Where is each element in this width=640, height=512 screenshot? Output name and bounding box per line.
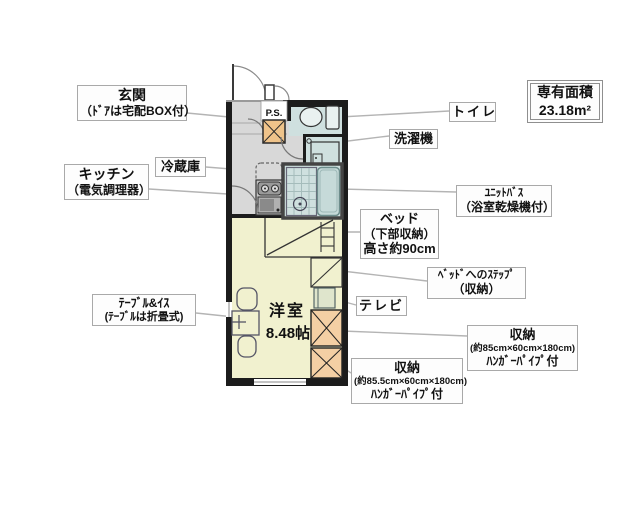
label-storage-bottom: 収納 (約85.5cm×60cm×180cm) ﾊﾝｶﾞｰﾊﾟｲﾌﾟ付	[351, 358, 463, 404]
label-tv: テレビ	[356, 296, 407, 316]
wall-washer-left	[303, 136, 306, 165]
closet-lower	[311, 348, 342, 378]
tv-box	[314, 288, 335, 308]
wall-right	[342, 100, 348, 386]
label-kitchen: キッチン （電気調理器）	[64, 164, 149, 200]
leader-storage-right	[342, 331, 467, 336]
door-arc-right	[275, 86, 289, 100]
ps-text: P.S.	[266, 108, 283, 119]
bathtub-icon	[318, 168, 340, 216]
floor-plan-page: P.S. 洋室 8.48帖 専有面積 23.18m² 玄関 （ﾄﾞｱは宅配BOX…	[0, 0, 640, 512]
outside-door-swings	[233, 64, 289, 100]
label-entrance: 玄関 （ﾄﾞｱは宅配BOX付）	[77, 85, 187, 121]
label-unit-bath: ﾕﾆｯﾄﾊﾞｽ （浴室乾燥機付）	[456, 185, 552, 217]
bed-step-box	[311, 258, 342, 287]
leader-unit-bath	[340, 189, 456, 192]
closet-upper	[311, 310, 342, 346]
floor-plan-drawing: P.S. 洋室 8.48帖	[0, 0, 640, 512]
wall-entrance-toilet	[287, 101, 291, 121]
label-refrigerator: 冷蔵庫	[155, 157, 206, 177]
wall-left	[226, 100, 232, 386]
room-name-text: 洋室	[269, 301, 305, 320]
label-storage-right: 収納 (約85cm×60cm×180cm) ﾊﾝｶﾞｰﾊﾟｲﾌﾟ付	[467, 325, 578, 371]
exclusive-area-value: 23.18m²	[531, 102, 599, 120]
bath-tile-floor	[287, 168, 317, 216]
label-bed: ベッド （下部収納） 高さ約90cm	[360, 209, 439, 259]
door-arc-left	[234, 66, 266, 99]
leader-toilet	[340, 111, 449, 117]
leader-bed-step	[342, 271, 427, 281]
stove-icon	[258, 182, 281, 195]
sink-icon	[258, 197, 281, 213]
door-leaf-right	[265, 85, 274, 100]
kitchen-unit	[256, 180, 283, 215]
wall-toilet-washer	[303, 134, 342, 137]
room-size-text: 8.48帖	[266, 324, 310, 342]
label-bed-step: ﾍﾞｯﾄﾞへのｽﾃｯﾌﾟ （収納）	[427, 267, 526, 299]
label-washer: 洗濯機	[389, 129, 438, 149]
exclusive-area-title: 専有面積	[531, 84, 599, 102]
exclusive-area-inner: 専有面積 23.18m²	[530, 83, 600, 120]
label-toilet: トイレ	[449, 102, 496, 122]
label-table: ﾃｰﾌﾞﾙ&ｲｽ (ﾃｰﾌﾞﾙは折畳式)	[92, 294, 196, 326]
unit-bath	[283, 164, 342, 218]
exclusive-area-box: 専有面積 23.18m²	[527, 80, 603, 123]
